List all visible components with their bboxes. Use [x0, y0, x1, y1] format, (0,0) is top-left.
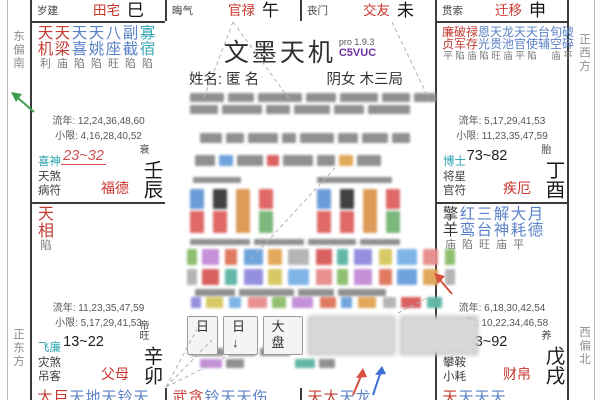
star-char: 铃 [204, 390, 220, 400]
palace-name: 交友 [363, 0, 390, 19]
direction-label-west-north: 西偏北 [576, 326, 592, 367]
stem-branch: 辛卯 [140, 346, 160, 385]
redacted-row [190, 105, 414, 114]
star-column: 副截陷 [122, 26, 139, 71]
day-down-button[interactable]: 日↓ [223, 316, 258, 355]
redacted-row [190, 189, 208, 209]
branch-label: 巳 [127, 0, 144, 21]
star-column: 天使陷 [526, 26, 538, 62]
left-gutter-line [7, 0, 8, 400]
redacted-row [190, 93, 440, 102]
palace-cell-zi-fuqi[interactable]: 天太天龙 [302, 388, 435, 400]
star-list: 武贪铃天天伤 [167, 388, 300, 400]
star-column: 天贵旺 [490, 26, 502, 62]
star-char: 太 [323, 390, 339, 400]
decade-age-range: 73~82 [437, 148, 537, 164]
palace-cell-shen-qianyi[interactable]: 贯索 迁移 申 [437, 0, 567, 21]
star-char: 天 [69, 390, 85, 400]
star-char: 巨 [53, 390, 69, 400]
branch-label: 未 [397, 0, 414, 21]
star-column: 三台旺 [476, 207, 493, 252]
star-column: 天官平 [514, 26, 526, 62]
decade-age-range: 23~32 [32, 148, 135, 164]
star-list: 天天天天 [437, 388, 567, 400]
redacted-row [259, 189, 277, 209]
star-char: 地 [85, 390, 101, 400]
star-char: 天 [220, 390, 236, 400]
star-char: 龙 [355, 390, 371, 400]
redacted-button[interactable] [308, 316, 395, 355]
app-title-block: 文墨天机 pro 1.9.3 C5VUC [165, 33, 435, 69]
star-column: 破碎平 [562, 26, 574, 62]
redacted-row [195, 155, 385, 166]
redacted-row [187, 269, 460, 285]
year-god-label: 丧门 [307, 3, 328, 18]
palace-cell-hai-zinv[interactable]: 天天天天 [437, 388, 567, 400]
redacted-row [386, 189, 404, 209]
year-god-label: 贯索 [442, 3, 463, 18]
star-column: 寡宿陷 [139, 26, 156, 71]
star-char: 武 [172, 390, 188, 400]
redacted-row [191, 297, 449, 308]
profile-info: 阴女 木三局 [326, 68, 403, 89]
star-char: 天 [133, 390, 149, 400]
star-column: 天梁庙 [54, 26, 71, 71]
star-column: 天姚陷 [88, 26, 105, 71]
palace-name: 疾厄 [503, 178, 531, 198]
star-char: 贪 [188, 390, 204, 400]
star-column: 台辅 [538, 26, 550, 62]
life-stage: 养 [539, 330, 550, 340]
star-column: 擎羊庙 [442, 207, 459, 252]
decade-age-range: 13~22 [32, 334, 135, 350]
palace-cell-mao-fumu[interactable]: 天相陷 流年: 11,23,35,47,59小限: 5,17,29,41,53 … [32, 204, 165, 388]
redacted-row [190, 211, 208, 233]
version-block: pro 1.9.3 C5VUC [339, 37, 376, 60]
star-list: 廉贞平破军陷禄存庙恩光陷天贵旺龙池庙天官平天使陷台辅 旬空庙破碎平 [442, 26, 574, 62]
star-char: 太 [37, 390, 53, 400]
star-column: 天相陷 [37, 207, 55, 253]
star-char: 天 [490, 390, 506, 400]
right-gutter-line [594, 0, 595, 400]
redacted-row [386, 211, 404, 233]
star-char: 伤 [252, 390, 268, 400]
version-label: pro 1.9.3 [339, 37, 376, 47]
star-column: 红鸾陷 [459, 207, 476, 252]
profile-row: 姓名: 匿 名 阴女 木三局 [189, 68, 403, 89]
center-info-panel: 文墨天机 pro 1.9.3 C5VUC 姓名: 匿 名 阴女 木三局 日 日↓… [165, 21, 435, 388]
main-chart-button[interactable]: 大盘 [263, 316, 303, 355]
star-list: 天太天龙 [302, 388, 435, 400]
branch-label: 午 [262, 0, 279, 21]
flow-year-ages: 流年: 12,24,36,48,60小限: 4,16,28,40,52 [32, 115, 165, 144]
profile-name: 姓名: 匿 名 [189, 68, 259, 89]
redacted-button[interactable] [400, 316, 478, 355]
life-stage: 帝旺 [137, 320, 148, 340]
star-char: 天 [339, 390, 355, 400]
minor-god-label: 病符 [38, 184, 61, 199]
star-char: 天 [458, 390, 474, 400]
star-char: 天 [474, 390, 490, 400]
redacted-row [200, 133, 414, 143]
palace-cell-wei-jiaoyou[interactable]: 丧门 交友 未 [302, 0, 435, 21]
palace-cell-xu-caibo[interactable]: 擎羊庙红鸾陷三台旺解神庙大耗平月德 流年: 6,18,30,42,54小限: 1… [437, 204, 567, 388]
redacted-row [190, 239, 404, 245]
branch-label: 申 [529, 0, 546, 21]
redacted-row [200, 359, 248, 368]
star-column: 天机利 [37, 26, 54, 71]
star-column: 八座旺 [105, 26, 122, 71]
star-char: 天 [442, 390, 458, 400]
star-char: 天 [307, 390, 323, 400]
redacted-row [187, 249, 460, 265]
star-char: 天 [236, 390, 252, 400]
star-column: 廉贞平 [442, 26, 454, 62]
minor-god-label: 官符 [443, 184, 466, 199]
direction-label-east-south: 东偏南 [10, 30, 26, 71]
star-list: 太巨天地天铃天 [32, 388, 165, 400]
star-column: 禄存庙 [466, 26, 478, 62]
day-button[interactable]: 日 [187, 316, 218, 355]
star-column: 龙池庙 [502, 26, 514, 62]
star-column: 旬空庙 [550, 26, 562, 62]
direction-label-east: 正东方 [10, 328, 26, 369]
star-list: 擎羊庙红鸾陷三台旺解神庙大耗平月德 [442, 207, 544, 252]
redacted-row [317, 211, 335, 233]
year-god-label: 晦气 [172, 3, 193, 18]
palace-name: 迁移 [495, 0, 522, 19]
minor-god-label: 吊客 [38, 370, 61, 385]
redacted-row [213, 211, 231, 233]
chart-toolbar: 日 日↓ 大盘 [187, 316, 478, 355]
palace-cell-chou-xiongdi[interactable]: 武贪铃天天伤 [167, 388, 300, 400]
palace-cell-yin-ming[interactable]: 太巨天地天铃天 [32, 388, 165, 400]
stem-branch: 壬辰 [140, 160, 160, 199]
redacted-row [317, 189, 335, 209]
star-column: 月德 [527, 207, 544, 252]
app-title: 文墨天机 [224, 33, 336, 69]
redacted-row [295, 359, 339, 368]
minor-god-label: 攀鞍 [443, 356, 466, 371]
stem-branch: 戊戌 [542, 346, 562, 385]
redacted-row [317, 177, 396, 183]
palace-name: 官禄 [228, 0, 255, 19]
redacted-row [363, 189, 381, 233]
license-code: C5VUC [339, 47, 376, 60]
minor-god-label: 小耗 [443, 370, 466, 385]
palace-name: 父母 [101, 364, 129, 384]
palace-name: 田宅 [93, 0, 120, 19]
star-column: 大耗平 [510, 207, 527, 252]
minor-god-label: 将星 [443, 170, 466, 185]
redacted-row [259, 211, 277, 233]
palace-name: 财帛 [503, 364, 531, 384]
minor-god-label: 天煞 [38, 170, 61, 185]
stem-branch: 丁酉 [542, 160, 562, 199]
palace-cell-chen-fude[interactable]: 天机利天梁庙天喜陷天姚陷八座旺副截陷寡宿陷 流年: 12,24,36,48,60… [32, 23, 165, 202]
life-stage: 胎 [539, 144, 550, 154]
redacted-row [340, 189, 358, 209]
star-list: 天机利天梁庙天喜陷天姚陷八座旺副截陷寡宿陷 [37, 26, 156, 71]
star-list: 天相陷 [37, 207, 55, 253]
flow-year-ages: 流年: 5,17,29,41,53小限: 11,23,35,47,59 [437, 115, 567, 144]
minor-god-label: 灾煞 [38, 356, 61, 371]
star-char: 铃 [117, 390, 133, 400]
palace-cell-si-tianzhai[interactable]: 岁建 田宅 巳 [32, 0, 165, 21]
star-column: 恩光陷 [478, 26, 490, 62]
palace-cell-wu-guanlu[interactable]: 晦气 官禄 午 [167, 0, 300, 21]
star-column: 天喜陷 [71, 26, 88, 71]
star-column: 破军陷 [454, 26, 466, 62]
redacted-row [195, 289, 390, 296]
redacted-row [340, 211, 358, 233]
direction-label-west: 正西方 [576, 33, 592, 74]
star-column: 解神庙 [493, 207, 510, 252]
star-char: 天 [101, 390, 117, 400]
life-stage: 衰 [137, 144, 148, 154]
palace-cell-you-jie[interactable]: 廉贞平破军陷禄存庙恩光陷天贵旺龙池庙天官平天使陷台辅 旬空庙破碎平 流年: 5,… [437, 23, 567, 202]
redacted-row [236, 189, 254, 233]
redacted-row [213, 189, 231, 209]
year-god-label: 岁建 [37, 3, 58, 18]
palace-name: 福德 [101, 178, 129, 198]
astrology-app-screen: 东偏南 正东方 正西方 西偏北 岁建 田宅 巳 晦气 官禄 午 丧门 交友 未 … [0, 0, 600, 400]
redacted-row [193, 177, 245, 183]
